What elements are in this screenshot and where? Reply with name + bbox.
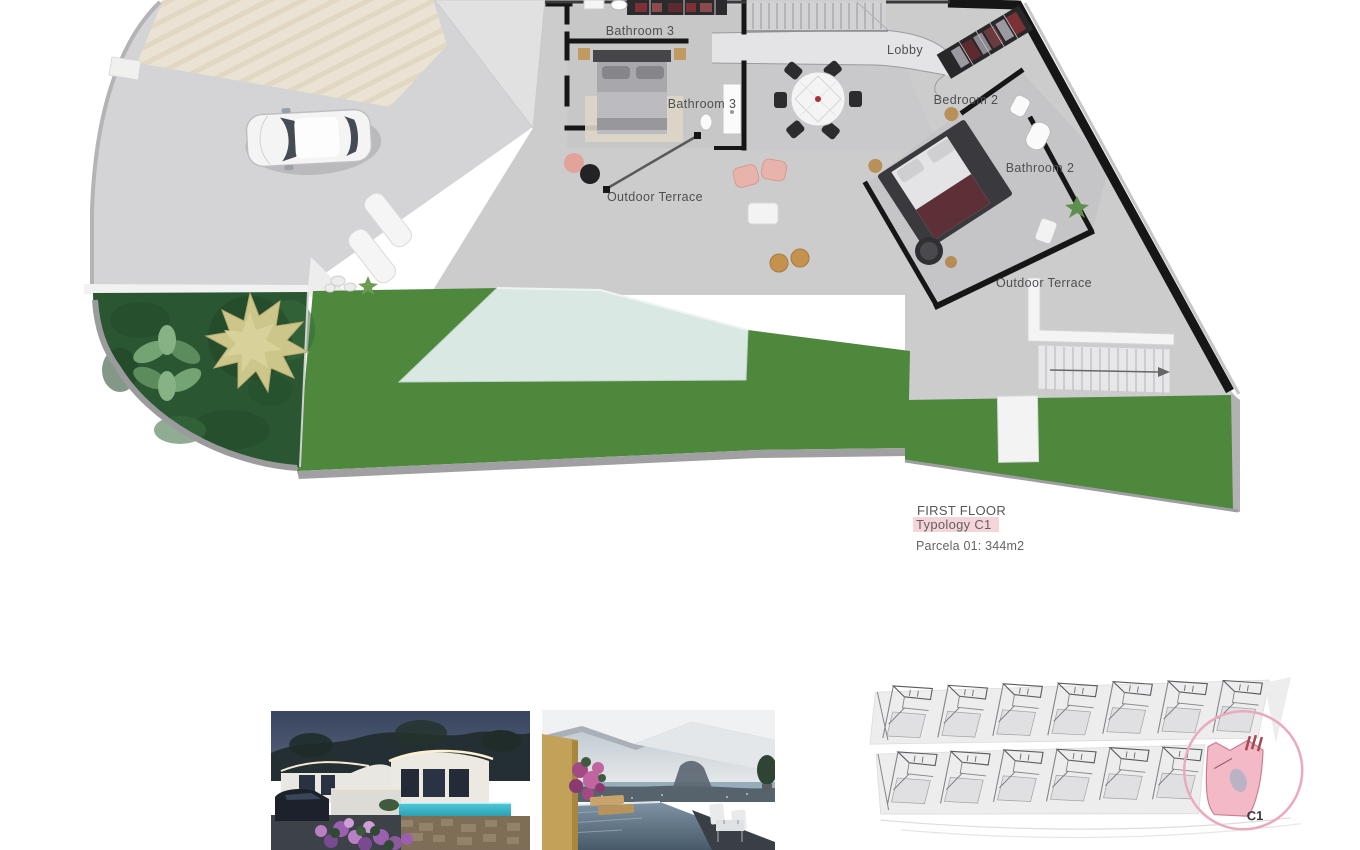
photo-villa-night	[271, 711, 530, 850]
first-floor-plan-sheet: Bathroom 3 Lobby Bathroom 3 Bedroom 2 Ba…	[0, 0, 1360, 850]
label-bathroom2: Bathroom 2	[1006, 161, 1075, 175]
site-plan-unit-label: C1	[1247, 808, 1264, 823]
site-plan-unit-c1	[1206, 735, 1264, 817]
floor-plan: Bathroom 3 Lobby Bathroom 3 Bedroom 2 Ba…	[84, 0, 1240, 512]
wardrobe-bedroom3	[627, 0, 727, 15]
site-plan: C1	[869, 677, 1303, 840]
label-terrace-right: Outdoor Terrace	[996, 276, 1092, 290]
label-bedroom2: Bedroom 2	[934, 93, 999, 107]
photo-terrace-sea-view	[542, 710, 777, 850]
label-terrace-left: Outdoor Terrace	[607, 190, 703, 204]
right-lawn	[905, 395, 1238, 510]
label-bathroom3-top: Bathroom 3	[606, 24, 675, 38]
caption-typology: Typology C1	[916, 517, 992, 532]
caption: FIRST FLOOR Typology C1 Parcela 01: 344m…	[913, 503, 1024, 553]
label-bathroom3-mid: Bathroom 3	[668, 97, 737, 111]
label-lobby: Lobby	[887, 43, 923, 57]
caption-parcel: Parcela 01: 344m2	[916, 539, 1024, 553]
caption-floor: FIRST FLOOR	[917, 503, 1006, 518]
page: Bathroom 3 Lobby Bathroom 3 Bedroom 2 Ba…	[0, 0, 1360, 850]
interior-stairs	[746, 2, 888, 31]
